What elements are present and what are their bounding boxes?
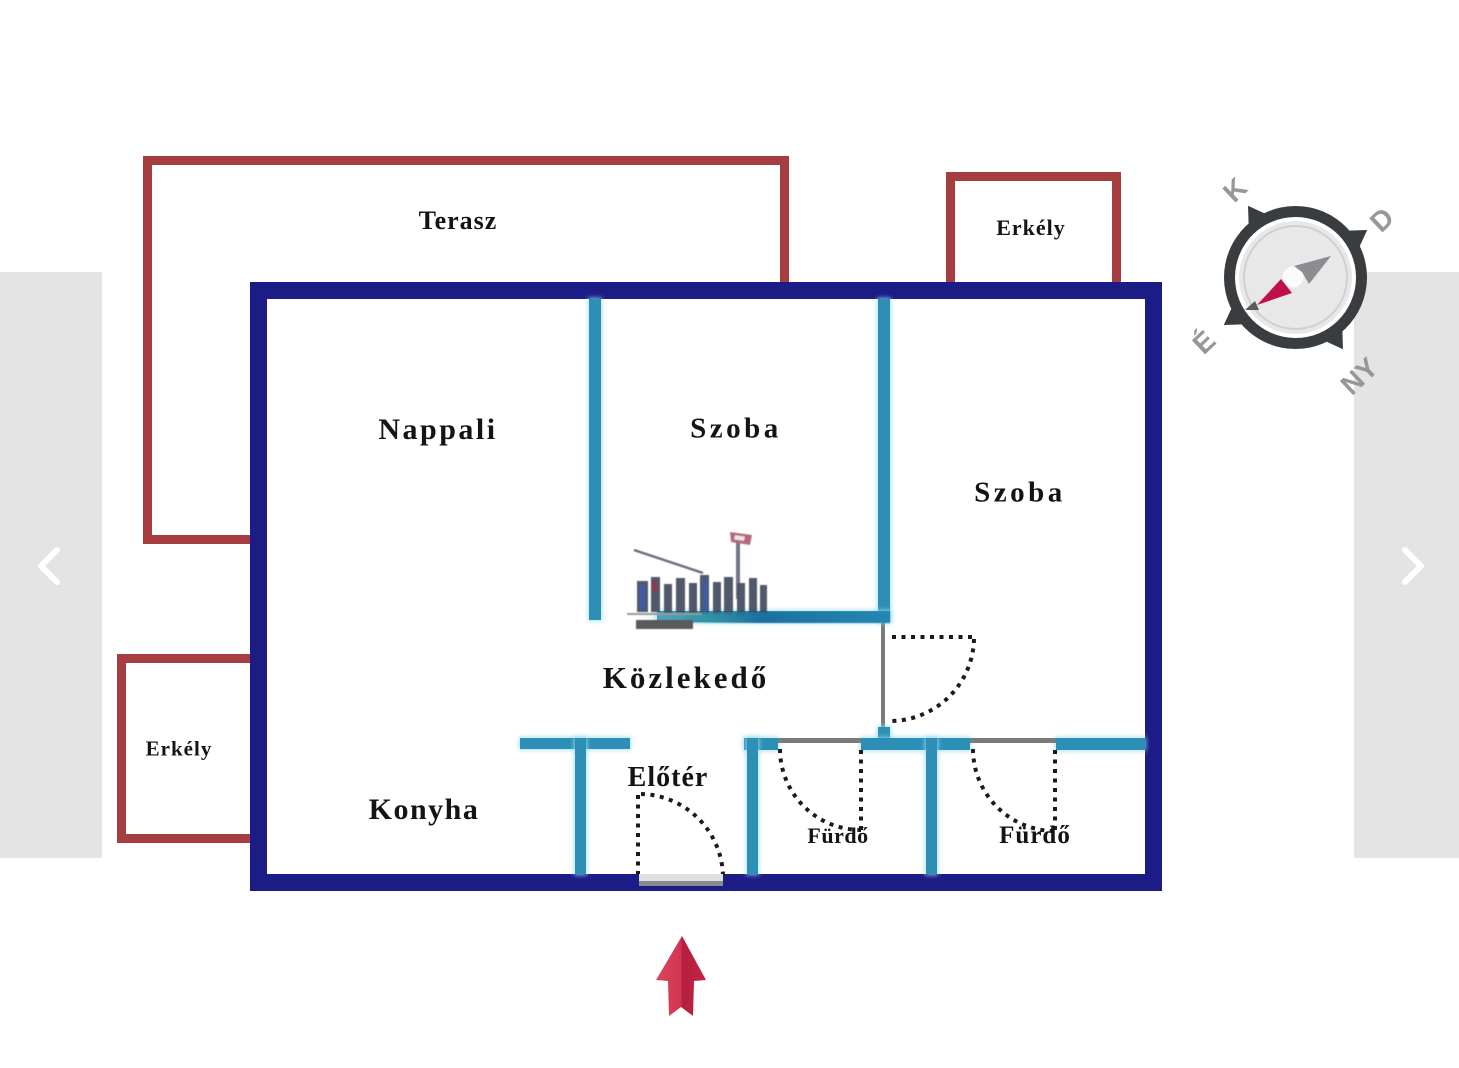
svg-text:K: K (1217, 172, 1253, 208)
svg-text:D: D (1364, 202, 1400, 238)
svg-text:NY: NY (1335, 351, 1385, 400)
svg-text:É: É (1187, 325, 1222, 360)
